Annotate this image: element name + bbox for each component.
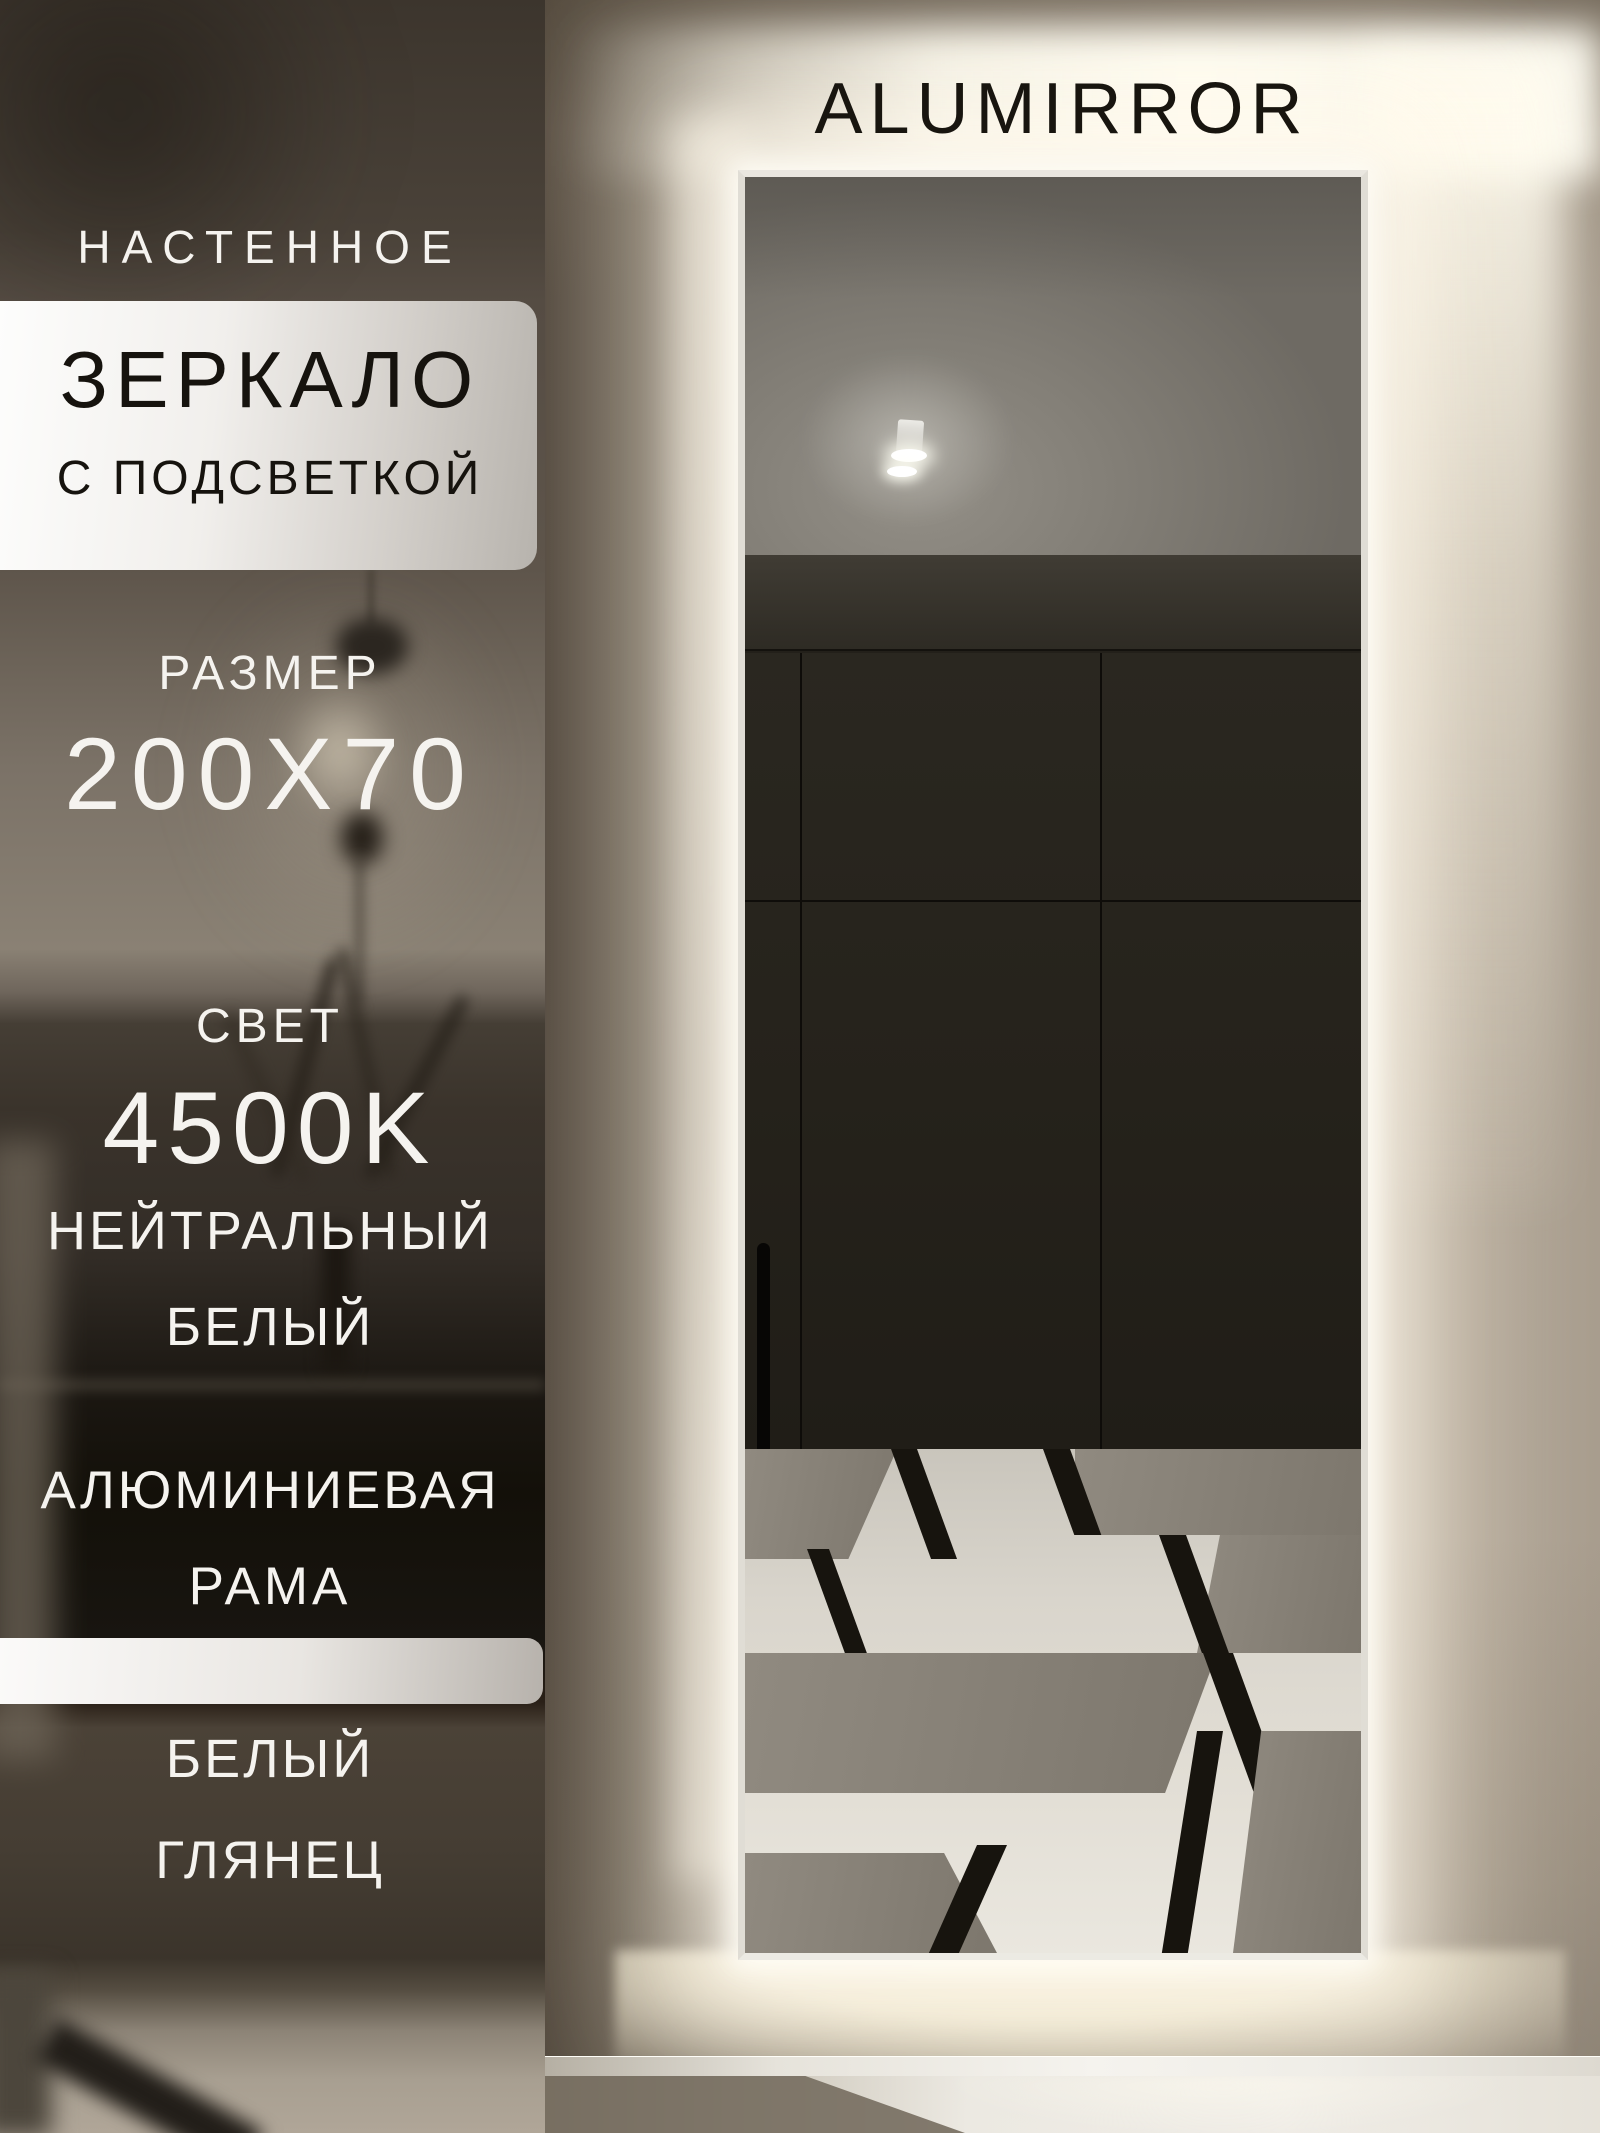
pendant-lamp-stem: [357, 858, 362, 1003]
wardrobe-doors: [745, 653, 1361, 1449]
label-finish-2: ГЛЯНЕЦ: [0, 1832, 540, 1890]
reflection-wardrobe: [745, 555, 1361, 1449]
floor-gray-tile: [545, 2076, 965, 2133]
label-light-desc-2: БЕЛЫЙ: [0, 1298, 540, 1357]
reflection-ceiling: [745, 177, 1361, 555]
wardrobe-top-panel: [745, 555, 1361, 651]
tile-black-stripe: [807, 1549, 867, 1653]
floor-tile-stripe-blur: [35, 2018, 264, 2133]
mirror-reflection: [745, 177, 1361, 1953]
label-product: ЗЕРКАЛО: [0, 336, 540, 424]
label-light-desc-1: НЕЙТРАЛЬНЫЙ: [0, 1202, 540, 1261]
label-mount-type: НАСТЕННОЕ: [0, 222, 540, 273]
floor: [545, 2076, 1600, 2133]
led-glow-bottom: [615, 1950, 1565, 2068]
wardrobe-handle: [757, 1243, 770, 1449]
label-light-title: СВЕТ: [0, 1001, 540, 1054]
wardrobe-seam: [800, 653, 802, 1449]
label-finish-1: БЕЛЫЙ: [0, 1730, 540, 1789]
reflection-floor-tiles: [745, 1449, 1361, 1953]
ceiling-light-disc: [887, 466, 917, 477]
label-size-title: РАЗМЕР: [0, 648, 540, 701]
tile-gray: [745, 1653, 1217, 1793]
wardrobe-seam: [1100, 653, 1102, 1449]
banner-band-divider: [0, 1638, 543, 1704]
label-frame-1: АЛЮМИНИЕВАЯ: [0, 1462, 540, 1520]
console-edge-blur: [0, 1380, 545, 1390]
floor-light-reflection: [945, 2076, 1505, 2133]
tile-gray: [745, 1449, 897, 1559]
tile-black-stripe: [891, 1449, 957, 1559]
tile-gray: [1075, 1449, 1361, 1535]
brand-logo: ALUMIRROR: [814, 68, 1309, 150]
ceiling-light-disc: [891, 449, 927, 462]
led-glow-left: [673, 120, 748, 1880]
baseboard: [545, 2056, 1600, 2076]
label-light-value: 4500K: [0, 1072, 540, 1184]
shadow-blur: [0, 0, 360, 340]
label-size-value: 200X70: [0, 718, 540, 830]
wardrobe-seam: [745, 900, 1361, 902]
label-feature: С ПОДСВЕТКОЙ: [0, 453, 540, 506]
led-glow-right: [1365, 55, 1565, 1205]
ceiling-light-fixture: [896, 419, 924, 455]
label-frame-2: РАМА: [0, 1558, 540, 1616]
mirror: [738, 170, 1368, 1960]
product-photo: ALUMIRROR НАСТЕННОЕ ЗЕРКАЛО С ПОДСВЕТКОЙ…: [0, 0, 1600, 2133]
ceiling-light-glow: [800, 352, 1015, 527]
